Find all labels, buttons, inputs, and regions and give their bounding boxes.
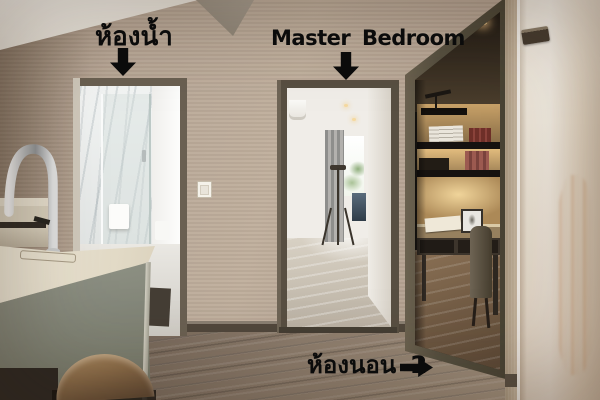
inner-right-wall: [368, 88, 391, 327]
air-conditioner: [289, 100, 306, 120]
desk-leg: [493, 255, 498, 315]
interior-photo: ห้องน้ำ Master Bedroom ห้องนอน 2 CheckRa…: [0, 0, 600, 400]
recessed-light: [344, 104, 348, 107]
shower-door-handle: [142, 150, 146, 162]
towel: [109, 204, 129, 229]
book-stack: [429, 125, 464, 142]
towel: [155, 221, 169, 240]
door-edge-highlight: [517, 0, 520, 400]
telescope-decor: [435, 96, 437, 109]
sink-outline: [20, 250, 76, 263]
recessed-light: [352, 118, 356, 121]
master-bedroom-interior: [287, 88, 391, 327]
kitchen-faucet: [0, 140, 70, 255]
window-with-greenery: [344, 136, 364, 196]
shelf-board: [417, 142, 500, 149]
tv-screen: [352, 193, 366, 221]
bedroom2-doorway: [399, 0, 509, 382]
floor-lamp-pole: [337, 168, 339, 245]
recessed-door-handle: [521, 26, 550, 45]
master-bedroom-label: Master Bedroom: [271, 28, 465, 49]
glossy-white-door: [517, 0, 600, 400]
door-threshold: [279, 327, 397, 333]
bedroom2-interior: [399, 0, 509, 382]
doorway-shadow: [415, 80, 426, 350]
bathroom-label: ห้องน้ำ: [95, 24, 173, 50]
door-reflection: [555, 175, 595, 375]
shelf-board: [417, 170, 500, 177]
desk-chair: [470, 226, 492, 298]
shelf-board: [421, 108, 467, 115]
book-row: [465, 151, 489, 170]
light-switch-plate: [200, 185, 209, 195]
book-row: [469, 128, 491, 142]
light-switch: [197, 181, 212, 198]
under-counter-cabinet: [0, 368, 58, 400]
master-bedroom-doorway: [277, 80, 399, 333]
